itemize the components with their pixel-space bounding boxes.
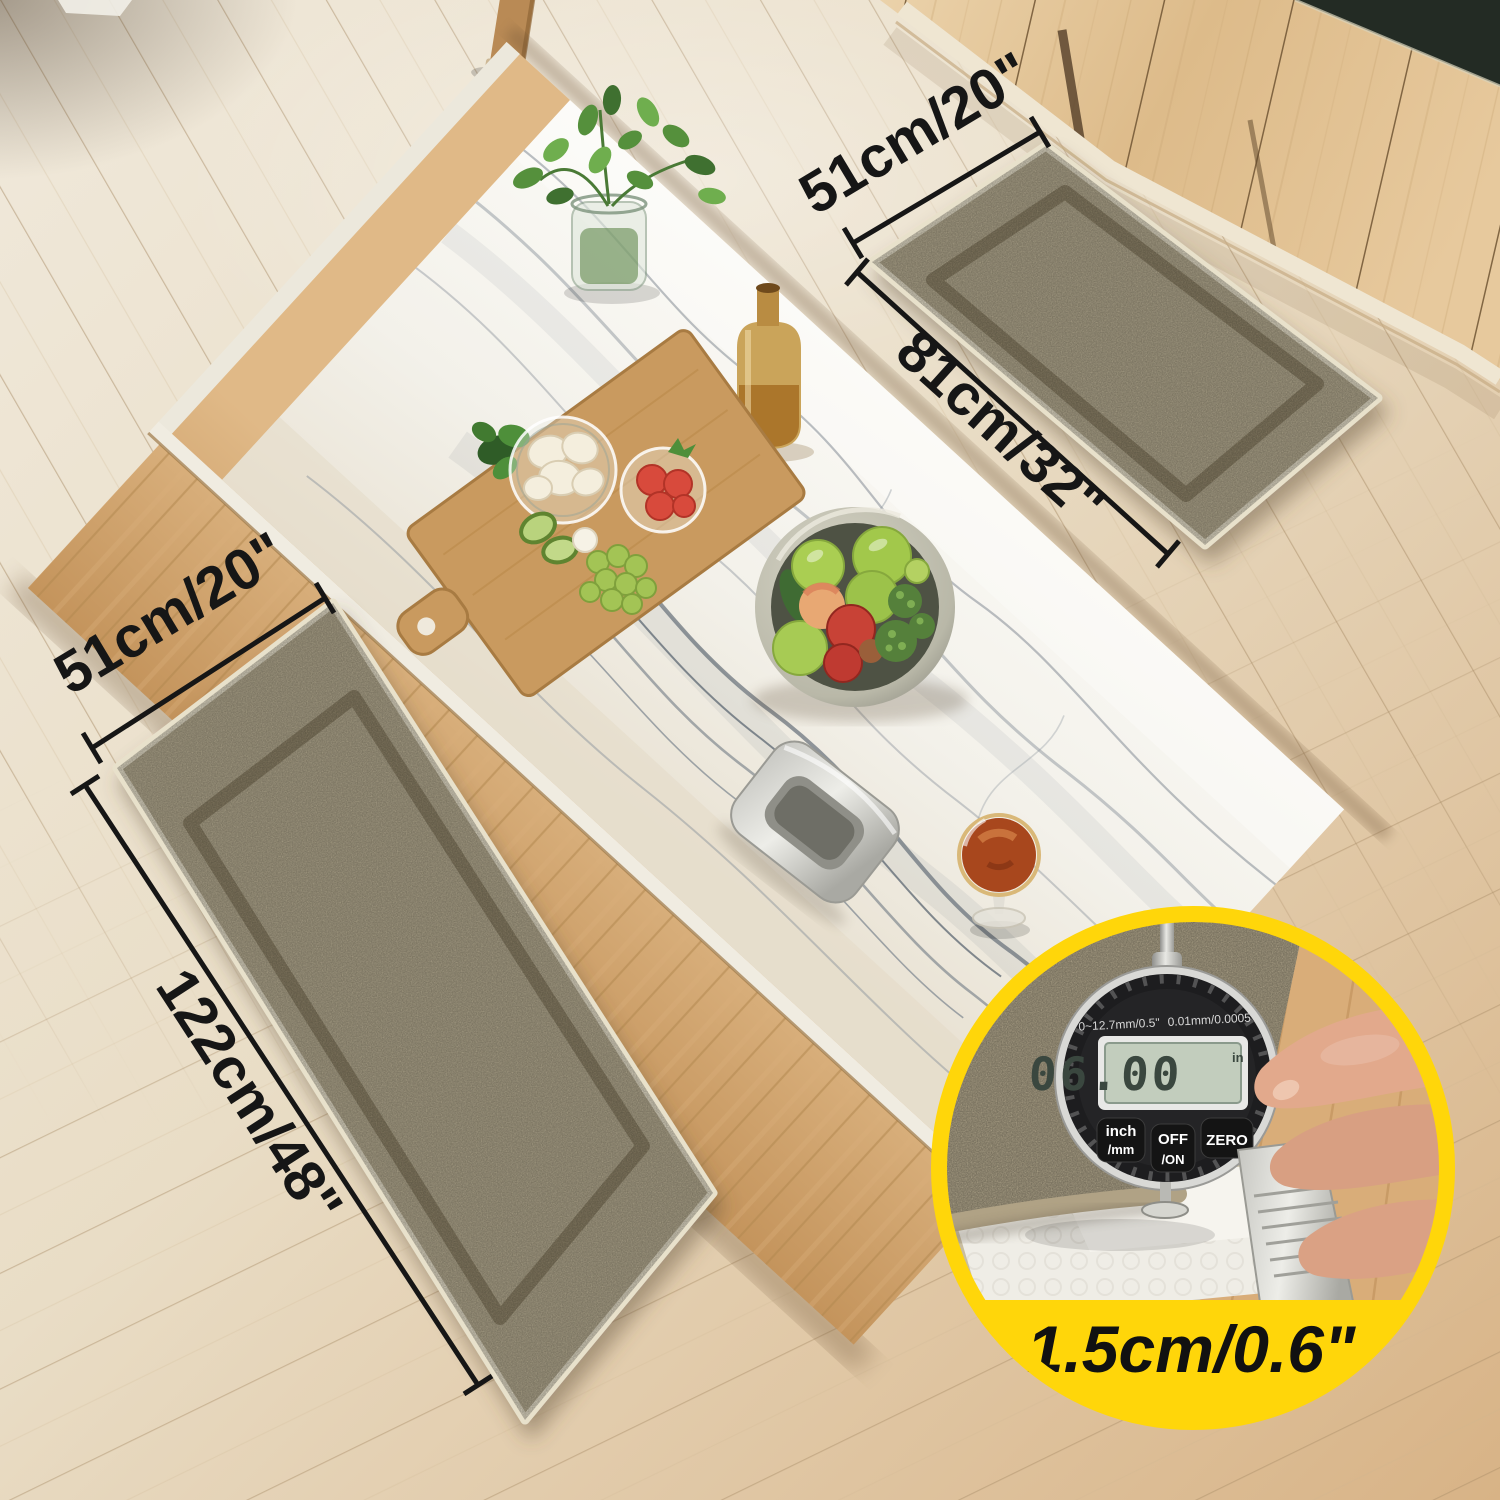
gauge-lcd-value: 06.00: [1028, 1047, 1184, 1101]
svg-text:inch: inch: [1106, 1123, 1137, 1140]
garlic-bowl: [510, 417, 616, 523]
mozzarella-ball: [573, 528, 597, 552]
svg-text:ZERO: ZERO: [1206, 1132, 1248, 1149]
gauge-lcd-unit: in: [1232, 1050, 1244, 1065]
svg-text:OFF: OFF: [1158, 1131, 1188, 1148]
svg-text:/ON: /ON: [1161, 1152, 1184, 1167]
svg-text:/mm: /mm: [1108, 1142, 1135, 1157]
product-photo: 51cm/20" 81cm/32" 51cm/20" 122cm/48": [0, 0, 1500, 1500]
gauge-probe-foot: [1142, 1202, 1188, 1218]
thickness-label: 1.5cm/0.6": [1027, 1312, 1356, 1386]
